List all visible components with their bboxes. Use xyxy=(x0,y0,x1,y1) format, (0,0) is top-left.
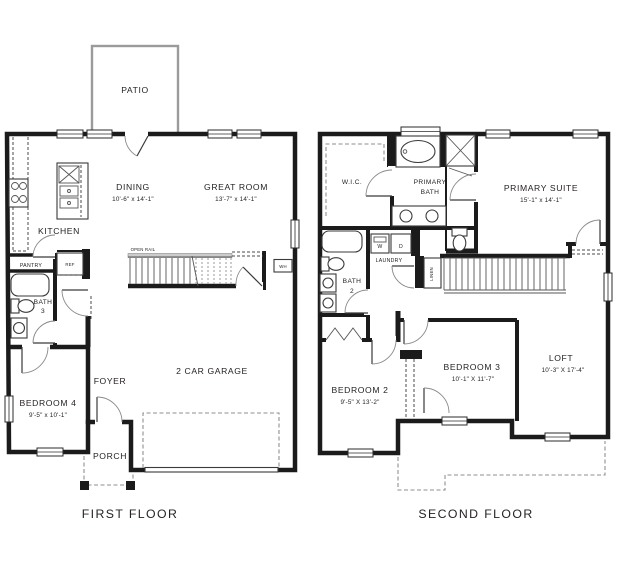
bath2-door-opening xyxy=(364,289,372,315)
front-door-opening xyxy=(95,418,122,426)
loft-label: LOFT xyxy=(549,353,574,363)
primary-bath-label-line2: BATH xyxy=(421,189,440,196)
first-floor-plan: PATIO DINING 10'-6" x 14'-1" GREAT ROOM … xyxy=(5,46,299,521)
garage-label: 2 CAR GARAGE xyxy=(176,366,248,376)
pantry-label: PANTRY xyxy=(20,263,43,269)
bath2-fixtures xyxy=(320,231,362,312)
bedroom4-dims: 9'-5" x 10'-1" xyxy=(29,412,67,419)
bath2-toilet-icon xyxy=(321,257,344,271)
first-floor-stairs xyxy=(128,252,263,286)
tub-nook-wall-left xyxy=(387,134,396,167)
bedroom3-label: BEDROOM 3 xyxy=(444,362,501,372)
great-room-dims: 13'-7" x 14'-1" xyxy=(215,196,257,203)
loft-dims: 10'-3" X 17'-4" xyxy=(542,367,585,374)
bath2-sink2-icon xyxy=(320,294,336,312)
vanity-double-sink-icon xyxy=(392,206,446,226)
second-floor-caption: SECOND FLOOR xyxy=(418,507,533,521)
bedroom4-label: BEDROOM 4 xyxy=(20,398,77,408)
bath2-label-line1: BATH xyxy=(343,278,362,285)
kitchen-island xyxy=(57,163,88,219)
bath3-label-line2: 3 xyxy=(41,308,45,315)
bedroom3-dims: 10'-1" X 11'-7" xyxy=(452,376,494,383)
dining-dims: 10'-6" x 14'-1" xyxy=(112,196,154,203)
bath3-label-line1: BATH xyxy=(34,299,53,306)
bedroom4-door-opening xyxy=(22,343,50,351)
porch-post-left xyxy=(80,481,89,490)
bathtub-icon xyxy=(11,274,49,296)
shower-icon xyxy=(446,135,475,176)
washer-label: W xyxy=(377,244,382,250)
patio-label: PATIO xyxy=(121,85,149,95)
bedroom2-label: BEDROOM 2 xyxy=(332,385,389,395)
second-floor-stairs xyxy=(444,258,566,293)
garage-door-recess xyxy=(143,413,279,468)
bedroom3-door-opening xyxy=(404,316,428,324)
primary-bath-door-opening xyxy=(472,172,480,202)
bedroom2-dims: 9'-5" X 13'-2" xyxy=(340,399,379,406)
primary-bath-label-line1: PRIMARY xyxy=(414,179,447,186)
second-floor-plan: W.I.C. PRIMARY BATH PRIMARY SUITE 15'-1"… xyxy=(320,127,612,521)
bedroom2-door-opening xyxy=(372,336,396,344)
open-rail-label: OPEN RAIL xyxy=(131,247,156,252)
linen-west-wall xyxy=(415,256,424,288)
kitchen-counter xyxy=(9,137,28,251)
primary-toilet-icon xyxy=(452,228,467,251)
kitchen-label: KITCHEN xyxy=(38,226,80,236)
great-room-label: GREAT ROOM xyxy=(204,182,268,192)
bath2-sink1-icon xyxy=(320,274,336,292)
first-floor-roof-outline xyxy=(398,441,605,490)
wic-label: W.I.C. xyxy=(342,179,362,186)
porch-label: PORCH xyxy=(93,451,127,461)
sink-icon xyxy=(11,318,27,338)
primary-suite-label: PRIMARY SUITE xyxy=(504,183,578,193)
porch-post-right xyxy=(126,481,135,490)
floor-plan-drawing: PATIO DINING 10'-6" x 14'-1" GREAT ROOM … xyxy=(0,0,617,582)
bath2-tub-icon xyxy=(322,231,362,252)
garden-tub-icon xyxy=(396,136,440,167)
laundry-label: LAUNDRY xyxy=(376,258,403,264)
bath2-label-line2: 2 xyxy=(350,288,354,295)
water-heater-label: WH xyxy=(279,264,287,269)
toilet-icon xyxy=(11,299,34,313)
bedroom3-closet-wall xyxy=(400,350,422,359)
primary-suite-dims: 15'-1" x 14'-1" xyxy=(520,197,562,204)
bath3-door-opening xyxy=(51,321,59,343)
dryer-label: D xyxy=(399,244,403,250)
bath3-fixtures xyxy=(11,274,49,338)
foyer-label: FOYER xyxy=(94,376,127,386)
stair-overlook-dashes xyxy=(572,250,603,254)
laundry-east-wall xyxy=(411,230,420,256)
garage-door-panel xyxy=(145,468,278,473)
patio-door-opening xyxy=(125,130,148,138)
linen-label: LINEN xyxy=(429,267,434,281)
ref-label: REF xyxy=(65,262,74,267)
bedroom3-closet-lines xyxy=(406,359,414,418)
pantry-door-opening xyxy=(33,251,55,259)
floor-plan-page: PATIO DINING 10'-6" x 14'-1" GREAT ROOM … xyxy=(0,0,617,582)
first-floor-caption: FIRST FLOOR xyxy=(82,507,178,521)
dining-label: DINING xyxy=(116,182,150,192)
